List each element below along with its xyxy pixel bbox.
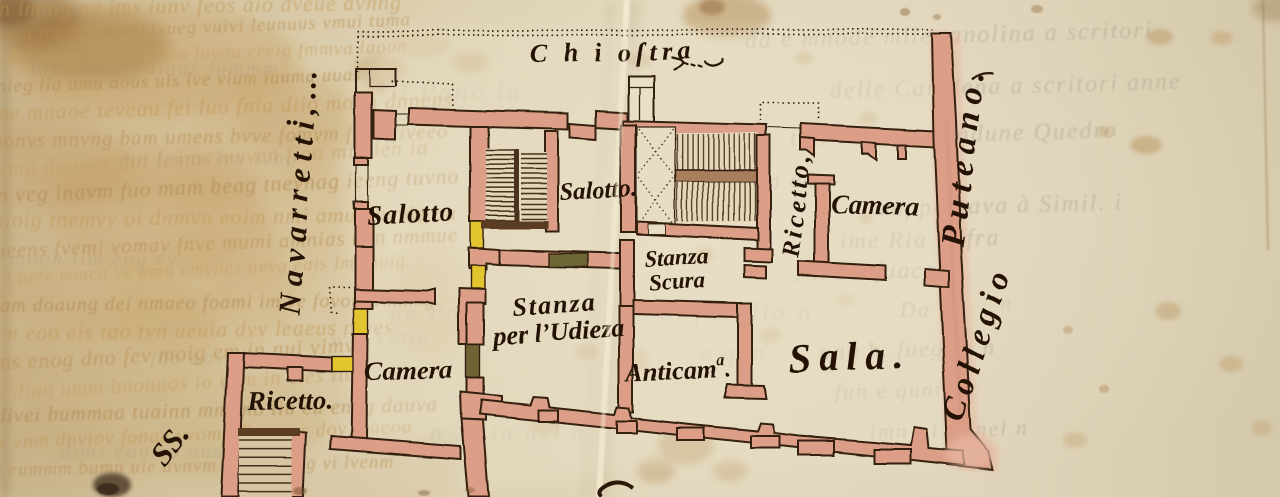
svg-text:Camera: Camera bbox=[830, 189, 920, 222]
svg-text:Ricetto.: Ricetto. bbox=[247, 385, 333, 416]
svg-text:mooa lim eng ev: mooa lim eng ev bbox=[10, 246, 178, 270]
svg-text:Sala.: Sala. bbox=[787, 331, 913, 382]
svg-text:mn lnins lva lvoo: mn lnins lva lvoo bbox=[120, 146, 298, 170]
svg-text:Scura: Scura bbox=[648, 268, 705, 295]
svg-text:loei ammie linus fummm: loei ammie linus fummm bbox=[30, 56, 280, 80]
svg-text:Salotto.: Salotto. bbox=[559, 175, 639, 206]
svg-text:C h i oſtra: C h i oſtra bbox=[530, 36, 696, 68]
svg-text:Camera: Camera bbox=[364, 354, 453, 386]
svg-text:Stanza: Stanza bbox=[644, 244, 709, 271]
svg-text:Salotto: Salotto bbox=[366, 197, 455, 231]
